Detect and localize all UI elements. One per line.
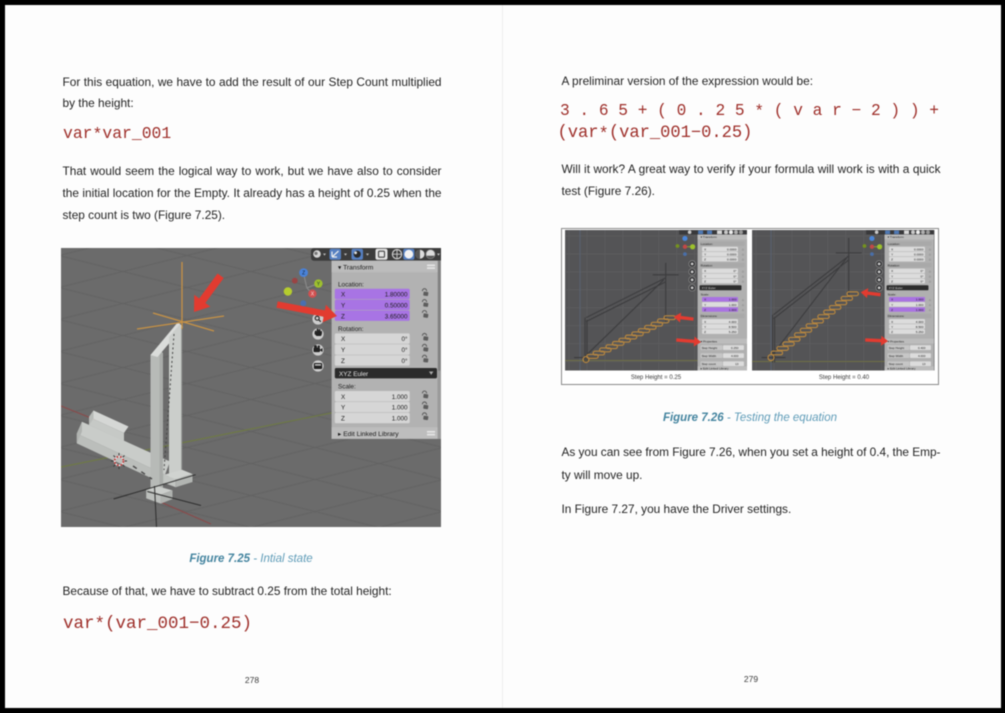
svg-text:Rotation:: Rotation: <box>700 263 712 267</box>
svg-text:▾ Transform: ▾ Transform <box>888 235 905 239</box>
svg-text:▾ Properties: ▾ Properties <box>888 339 905 343</box>
svg-text:0.250: 0.250 <box>731 346 739 350</box>
svg-text:8.500: 8.500 <box>728 325 736 329</box>
svg-text:Y: Y <box>704 325 706 329</box>
svg-text:Step Height: Step Height <box>701 346 717 350</box>
svg-text:8.500: 8.500 <box>916 325 924 329</box>
svg-text:Z: Z <box>704 308 706 312</box>
svg-text:1.000: 1.000 <box>916 308 924 312</box>
svg-text:▾ Transform: ▾ Transform <box>700 235 717 239</box>
svg-text:Z: Z <box>704 258 706 262</box>
svg-text:⌂: ⌂ <box>929 280 931 284</box>
svg-text:4.000: 4.000 <box>916 320 924 324</box>
svg-text:0.0000: 0.0000 <box>914 247 924 251</box>
svg-text:0.0000: 0.0000 <box>727 253 737 257</box>
svg-text:Z: Z <box>704 330 706 334</box>
svg-text:Location:: Location: <box>700 242 713 246</box>
svg-text:XYZ Euler: XYZ Euler <box>339 371 369 378</box>
svg-text:X: X <box>891 320 893 324</box>
svg-text:0°: 0° <box>401 357 408 365</box>
svg-text:3.65000: 3.65000 <box>385 313 408 320</box>
svg-text:Dimensions:: Dimensions: <box>888 314 905 318</box>
svg-text:⌂: ⌂ <box>741 308 743 312</box>
svg-text:1.000: 1.000 <box>728 308 736 312</box>
svg-text:▸ Edit Linked Library: ▸ Edit Linked Library <box>700 367 728 371</box>
svg-text:⌂: ⌂ <box>741 303 743 307</box>
svg-text:1.000: 1.000 <box>392 394 408 401</box>
svg-text:0.0000: 0.0000 <box>914 253 924 257</box>
svg-text:0.400: 0.400 <box>918 346 926 350</box>
svg-text:⌂: ⌂ <box>741 248 743 252</box>
svg-text:X: X <box>891 247 893 251</box>
svg-text:Z: Z <box>302 271 305 277</box>
svg-text:Y: Y <box>891 325 893 329</box>
svg-text:▸ Edit Linked Library: ▸ Edit Linked Library <box>888 367 916 371</box>
svg-text:X: X <box>704 269 706 273</box>
svg-text:Scale:: Scale: <box>888 292 897 296</box>
svg-text:0°: 0° <box>401 346 408 354</box>
svg-text:Z: Z <box>891 330 893 334</box>
svg-text:1.000: 1.000 <box>916 298 924 302</box>
svg-text:X: X <box>891 298 893 302</box>
svg-text:XYZ Euler: XYZ Euler <box>889 286 903 290</box>
svg-text:Scale:: Scale: <box>700 292 709 296</box>
svg-text:Z: Z <box>341 358 345 365</box>
svg-text:1.000: 1.000 <box>392 405 408 412</box>
svg-text:Z: Z <box>891 258 893 262</box>
svg-text:4.000: 4.000 <box>731 354 739 358</box>
svg-text:X: X <box>704 298 706 302</box>
svg-text:0.0000: 0.0000 <box>727 258 737 262</box>
svg-text:1.000: 1.000 <box>916 303 924 307</box>
svg-text:13: 13 <box>922 362 926 366</box>
svg-text:Step count: Step count <box>889 362 903 366</box>
svg-text:Y: Y <box>891 303 893 307</box>
svg-text:Step count: Step count <box>701 362 715 366</box>
svg-text:4.000: 4.000 <box>728 320 736 324</box>
svg-text:Step Width: Step Width <box>889 354 904 358</box>
svg-text:Z: Z <box>891 279 893 283</box>
svg-text:⌂: ⌂ <box>741 258 743 262</box>
svg-text:Step Height: Step Height <box>889 346 905 350</box>
svg-text:4.000: 4.000 <box>918 354 926 358</box>
svg-text:⌂: ⌂ <box>929 308 931 312</box>
svg-text:Scale:: Scale: <box>338 383 356 390</box>
svg-text:Y: Y <box>704 274 706 278</box>
svg-text:Location:: Location: <box>338 282 364 289</box>
svg-text:Y: Y <box>704 303 706 307</box>
svg-text:X: X <box>704 247 706 251</box>
svg-text:Z: Z <box>341 416 345 423</box>
svg-text:⌂: ⌂ <box>741 253 743 257</box>
svg-text:1.000: 1.000 <box>392 416 408 423</box>
svg-text:Location:: Location: <box>888 242 901 246</box>
svg-text:▾ Properties: ▾ Properties <box>700 339 717 343</box>
svg-text:5.250: 5.250 <box>728 330 736 334</box>
svg-text:1.80000: 1.80000 <box>385 292 408 299</box>
svg-text:Y: Y <box>891 274 893 278</box>
svg-text:Rotation:: Rotation: <box>338 326 364 333</box>
svg-text:⌂: ⌂ <box>741 280 743 284</box>
svg-text:▾ Transform: ▾ Transform <box>338 264 374 271</box>
svg-text:▸ Edit Linked Library: ▸ Edit Linked Library <box>338 431 399 438</box>
svg-text:5.250: 5.250 <box>916 330 924 334</box>
svg-text:1.000: 1.000 <box>728 303 736 307</box>
svg-text:X: X <box>891 269 893 273</box>
svg-text:0°: 0° <box>401 335 408 343</box>
svg-text:X: X <box>704 320 706 324</box>
svg-text:Z: Z <box>341 313 345 320</box>
svg-text:13: 13 <box>735 362 739 366</box>
svg-text:Z: Z <box>704 279 706 283</box>
svg-text:Step Width: Step Width <box>701 354 716 358</box>
svg-text:⌂: ⌂ <box>929 274 931 278</box>
svg-text:⌂: ⌂ <box>929 269 931 273</box>
svg-text:0.50000: 0.50000 <box>385 302 408 309</box>
svg-text:⌂: ⌂ <box>741 298 743 302</box>
svg-text:Y: Y <box>704 253 706 257</box>
svg-text:0.0000: 0.0000 <box>914 258 924 262</box>
svg-text:Rotation:: Rotation: <box>888 263 900 267</box>
svg-text:⌂: ⌂ <box>929 303 931 307</box>
svg-text:⌂: ⌂ <box>741 274 743 278</box>
svg-text:Y: Y <box>891 253 893 257</box>
svg-text:⌂: ⌂ <box>929 248 931 252</box>
svg-text:Dimensions:: Dimensions: <box>700 314 717 318</box>
svg-text:0.0000: 0.0000 <box>727 247 737 251</box>
svg-text:Z: Z <box>891 308 893 312</box>
svg-text:⌂: ⌂ <box>929 298 931 302</box>
svg-text:⌂: ⌂ <box>741 269 743 273</box>
svg-text:1.000: 1.000 <box>728 298 736 302</box>
svg-text:XYZ Euler: XYZ Euler <box>701 286 715 290</box>
svg-text:⌂: ⌂ <box>929 258 931 262</box>
svg-text:⌂: ⌂ <box>929 253 931 257</box>
